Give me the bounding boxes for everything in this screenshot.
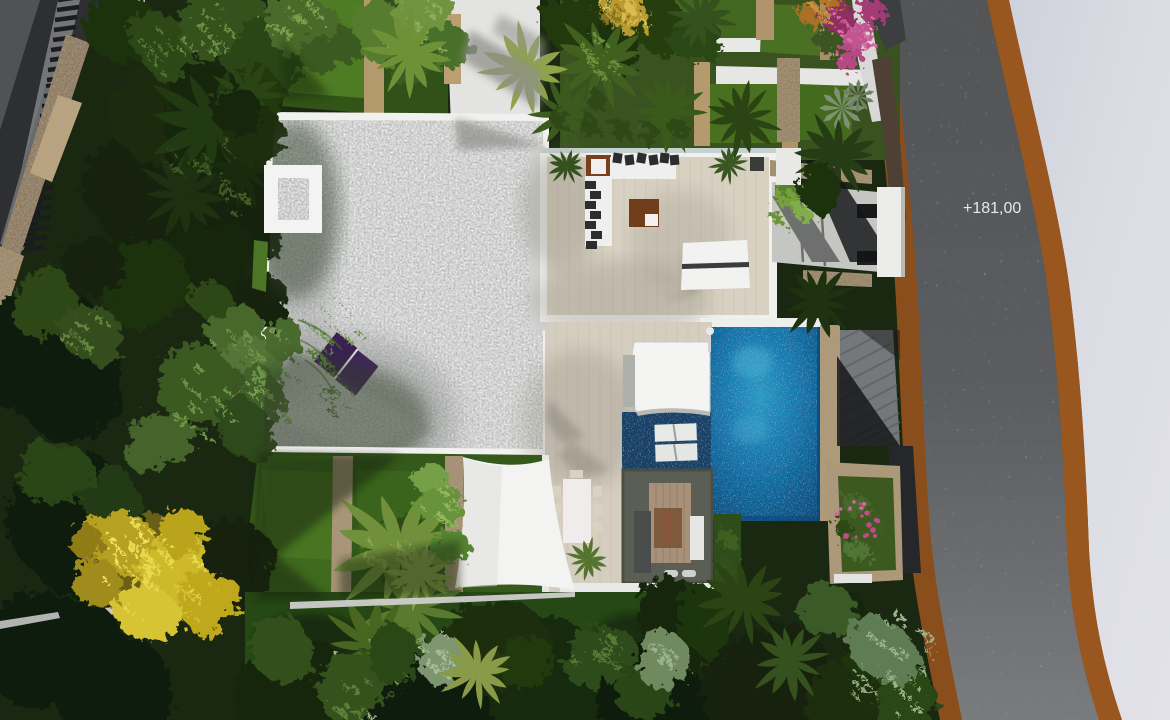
- svg-text:+181,00: +181,00: [963, 200, 1021, 217]
